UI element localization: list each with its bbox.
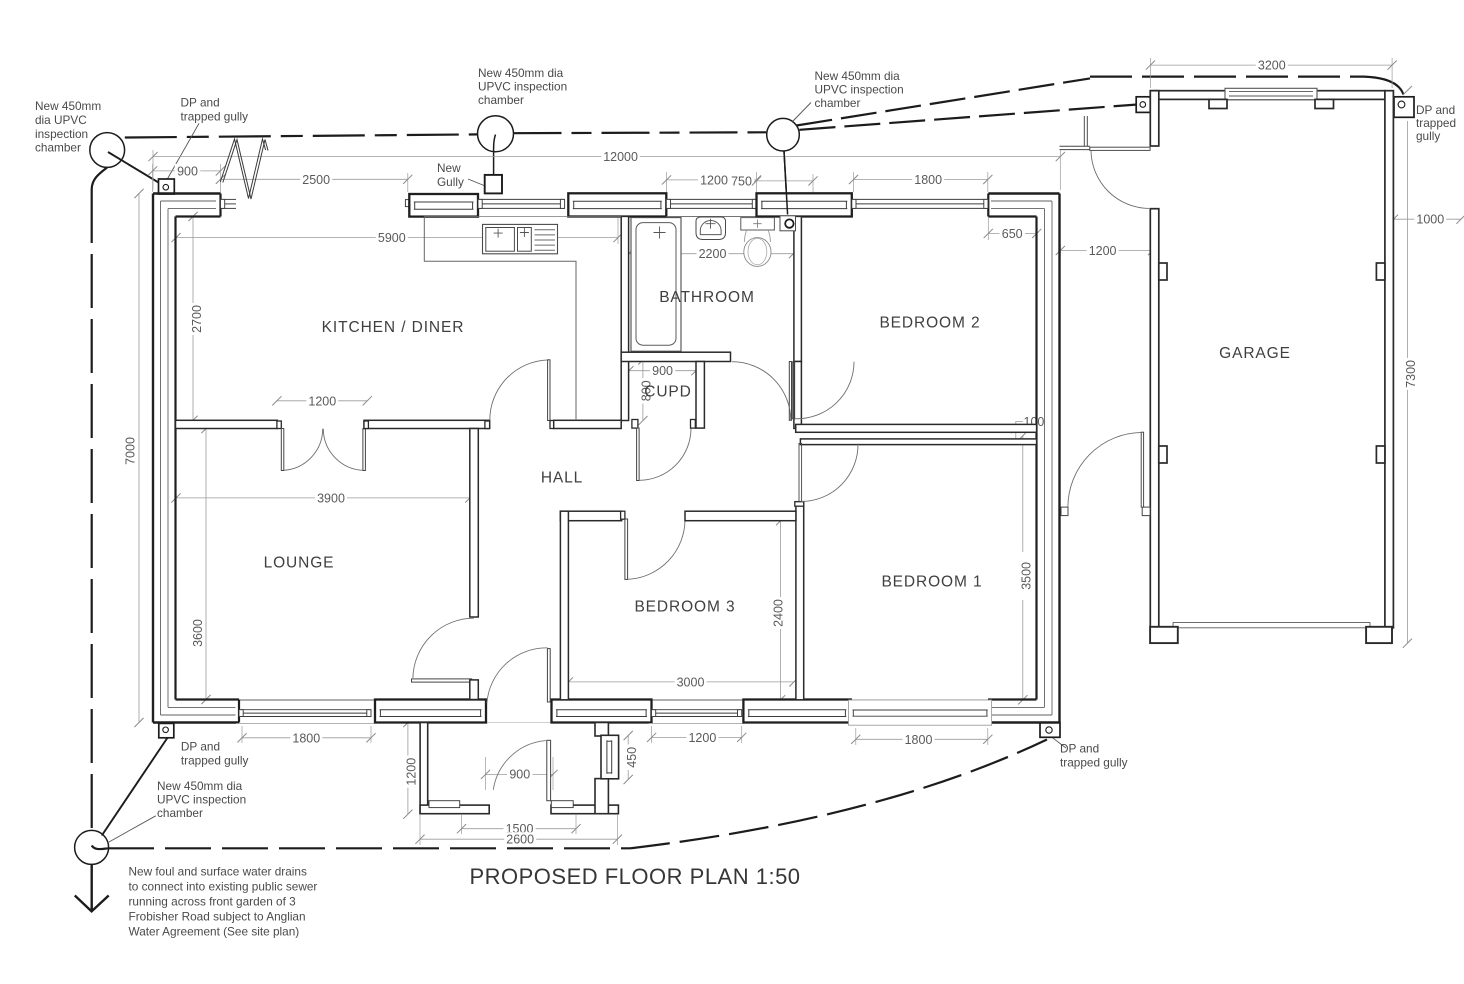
- svg-text:1000: 1000: [1416, 213, 1444, 227]
- svg-text:2500: 2500: [302, 173, 330, 187]
- svg-text:BATHROOM: BATHROOM: [659, 289, 755, 306]
- svg-text:New foul and surface water dra: New foul and surface water drains: [129, 865, 307, 879]
- svg-text:2400: 2400: [771, 599, 785, 627]
- svg-text:chamber: chamber: [478, 93, 524, 107]
- svg-text:LOUNGE: LOUNGE: [264, 555, 335, 572]
- svg-text:running across front garden of: running across front garden of 3: [129, 895, 297, 909]
- svg-text:New 450mm dia: New 450mm dia: [157, 779, 243, 793]
- svg-text:900: 900: [652, 364, 673, 378]
- svg-text:trapped gully: trapped gully: [1060, 756, 1128, 770]
- svg-text:BEDROOM 2: BEDROOM 2: [879, 315, 980, 332]
- svg-text:12000: 12000: [603, 150, 638, 164]
- svg-text:HALL: HALL: [541, 470, 583, 487]
- svg-text:BEDROOM 3: BEDROOM 3: [634, 599, 735, 616]
- svg-text:750: 750: [731, 174, 752, 188]
- svg-text:1200: 1200: [1089, 244, 1117, 258]
- svg-text:GARAGE: GARAGE: [1219, 345, 1291, 362]
- svg-text:1200: 1200: [308, 394, 336, 408]
- svg-text:DP and: DP and: [181, 96, 220, 110]
- svg-text:New: New: [437, 161, 461, 175]
- svg-text:trapped: trapped: [1416, 116, 1456, 130]
- svg-text:CUPD: CUPD: [644, 384, 692, 401]
- svg-text:KITCHEN / DINER: KITCHEN / DINER: [322, 319, 465, 336]
- svg-text:UPVC inspection: UPVC inspection: [815, 83, 904, 97]
- svg-text:trapped gully: trapped gully: [181, 754, 249, 768]
- svg-text:UPVC inspection: UPVC inspection: [157, 793, 246, 807]
- svg-text:dia UPVC: dia UPVC: [35, 113, 87, 127]
- svg-text:3900: 3900: [317, 491, 345, 505]
- svg-text:chamber: chamber: [35, 141, 81, 155]
- svg-text:DP and: DP and: [1060, 742, 1099, 756]
- svg-text:DP and: DP and: [181, 740, 220, 754]
- svg-text:3200: 3200: [1258, 59, 1286, 73]
- svg-text:450: 450: [625, 747, 639, 768]
- svg-text:3500: 3500: [1020, 562, 1034, 590]
- svg-text:Frobisher Road subject to Angl: Frobisher Road subject to Anglian: [129, 910, 306, 924]
- svg-text:1800: 1800: [905, 733, 933, 747]
- svg-text:1200: 1200: [688, 731, 716, 745]
- svg-text:650: 650: [1002, 227, 1023, 241]
- svg-text:DP and: DP and: [1416, 103, 1455, 117]
- svg-text:900: 900: [509, 767, 530, 781]
- svg-text:PROPOSED FLOOR PLAN 1:50: PROPOSED FLOOR PLAN 1:50: [469, 864, 800, 889]
- svg-text:900: 900: [177, 164, 198, 178]
- svg-text:New 450mm dia: New 450mm dia: [815, 69, 901, 83]
- svg-text:7300: 7300: [1404, 360, 1418, 388]
- svg-text:7000: 7000: [123, 437, 137, 465]
- svg-text:3600: 3600: [191, 619, 205, 647]
- svg-text:5900: 5900: [378, 231, 406, 245]
- svg-text:Gully: Gully: [437, 175, 464, 189]
- svg-text:inspection: inspection: [35, 127, 88, 141]
- svg-text:chamber: chamber: [157, 806, 203, 820]
- svg-text:UPVC inspection: UPVC inspection: [478, 80, 567, 94]
- svg-text:to connect into existing publi: to connect into existing public sewer: [129, 880, 318, 894]
- svg-text:1200: 1200: [700, 173, 728, 187]
- svg-text:New 450mm dia: New 450mm dia: [478, 66, 564, 80]
- svg-text:3000: 3000: [677, 675, 705, 689]
- svg-text:BEDROOM 1: BEDROOM 1: [881, 574, 982, 591]
- svg-text:Water Agreement (See site plan: Water Agreement (See site plan): [129, 925, 300, 939]
- svg-text:2200: 2200: [699, 247, 727, 261]
- svg-text:1200: 1200: [405, 758, 419, 786]
- svg-text:chamber: chamber: [815, 96, 861, 110]
- svg-text:2700: 2700: [190, 305, 204, 333]
- svg-text:gully: gully: [1416, 129, 1440, 143]
- svg-text:1800: 1800: [914, 173, 942, 187]
- svg-text:trapped gully: trapped gully: [181, 110, 249, 124]
- svg-text:New 450mm: New 450mm: [35, 99, 101, 113]
- svg-text:1800: 1800: [292, 731, 320, 745]
- svg-text:2600: 2600: [506, 833, 534, 847]
